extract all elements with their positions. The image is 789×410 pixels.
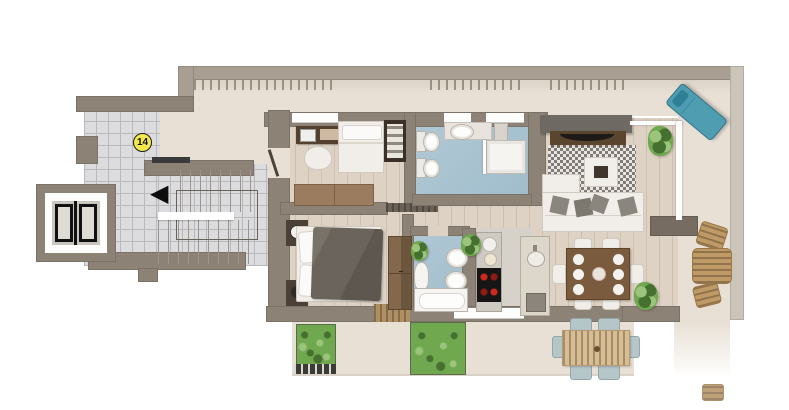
terrace-fade-bottom-right: [674, 322, 730, 384]
dining-chair: [630, 264, 644, 284]
wall-segment: [76, 136, 98, 164]
island-faucet: [533, 245, 537, 251]
master-wardrobe: [388, 236, 412, 310]
washbasin: [450, 124, 474, 140]
cooktop: [477, 268, 501, 302]
dining-table: [566, 248, 630, 300]
coffee-table: [584, 157, 618, 187]
bedroom2-window: [292, 113, 338, 123]
living-glass-wall-top: [630, 121, 682, 125]
place-setting: [613, 284, 624, 295]
sofa-seam: [334, 185, 335, 205]
elevator-door-split: [74, 201, 77, 245]
shower-glass: [483, 140, 486, 174]
living-glass-wall-right: [676, 121, 682, 220]
parapet-right: [730, 66, 744, 320]
apartment-floor-plan: ◀ 14: [0, 0, 789, 410]
bed-duvet: [311, 227, 383, 301]
toilet-bowl: [423, 132, 440, 152]
rattan-stool: [702, 384, 724, 401]
dining-chair: [552, 264, 566, 284]
tv-screen: [560, 134, 614, 141]
wardrobe-divider: [389, 273, 411, 274]
island-sink: [527, 251, 545, 267]
bathtub: [414, 288, 468, 312]
planter: [410, 322, 466, 375]
bidet-bowl: [423, 159, 440, 178]
railing-balusters-right: [550, 80, 624, 90]
elevator-door-right: [79, 204, 97, 242]
sofa: [542, 192, 644, 232]
place-setting: [573, 254, 584, 265]
coffee-table-tray: [592, 164, 610, 180]
stair-handrail: [158, 212, 234, 220]
wall-living-southeast: [650, 216, 698, 236]
dish: [482, 237, 497, 252]
single-bed-pillow: [342, 125, 382, 140]
desk-chair: [304, 146, 332, 170]
shower-tray: [486, 140, 526, 174]
wardrobe-handle: [399, 271, 403, 272]
kitchen-plant: [461, 234, 481, 256]
elevator-door-left: [55, 204, 73, 242]
dish: [484, 253, 497, 266]
island-tray: [526, 293, 546, 312]
stairs-direction-arrow-icon: ◀: [150, 181, 168, 205]
planter-grate: [294, 364, 336, 374]
table-runner-dot: [594, 346, 600, 352]
place-setting: [573, 284, 584, 295]
outdoor-chair: [598, 364, 620, 380]
railing-balusters-left: [186, 80, 334, 90]
single-bed-duvet-fold: [339, 142, 383, 144]
place-setting: [613, 254, 624, 265]
center-platter: [592, 267, 606, 281]
outdoor-chair: [570, 364, 592, 380]
unit-number: 14: [137, 137, 148, 148]
railing-balusters-mid: [430, 80, 526, 90]
wall-segment: [76, 96, 194, 112]
unit-number-badge: 14: [133, 133, 152, 152]
wall-segment: [138, 268, 158, 282]
laptop: [300, 129, 316, 142]
rattan-table: [692, 248, 732, 284]
sofa-pillow: [617, 196, 638, 217]
desk-papers: [320, 129, 338, 140]
hanging-clothes: [387, 124, 403, 158]
sofa-pillow: [549, 195, 569, 215]
bathtub-basin: [419, 293, 465, 309]
entry-door: [152, 157, 190, 163]
wall-bathroom1-south: [412, 194, 532, 206]
dining-plant: [634, 282, 658, 310]
living-plant: [648, 126, 673, 156]
planter: [296, 324, 336, 366]
outdoor-dining-table: [562, 330, 630, 366]
wardrobe-niche: [384, 120, 406, 162]
bathroom2-door-gap: [428, 226, 448, 236]
kitchen-island: [520, 236, 550, 316]
bedroom2-sofa: [294, 184, 374, 206]
parapet-top: [178, 66, 740, 80]
bathroom2-plant: [411, 241, 428, 261]
place-setting: [573, 269, 584, 280]
elevator-icon: [52, 201, 100, 245]
place-setting: [613, 269, 624, 280]
single-bed: [338, 121, 384, 173]
pedestal-sink: [414, 262, 429, 290]
bathroom-shelf: [494, 123, 508, 141]
